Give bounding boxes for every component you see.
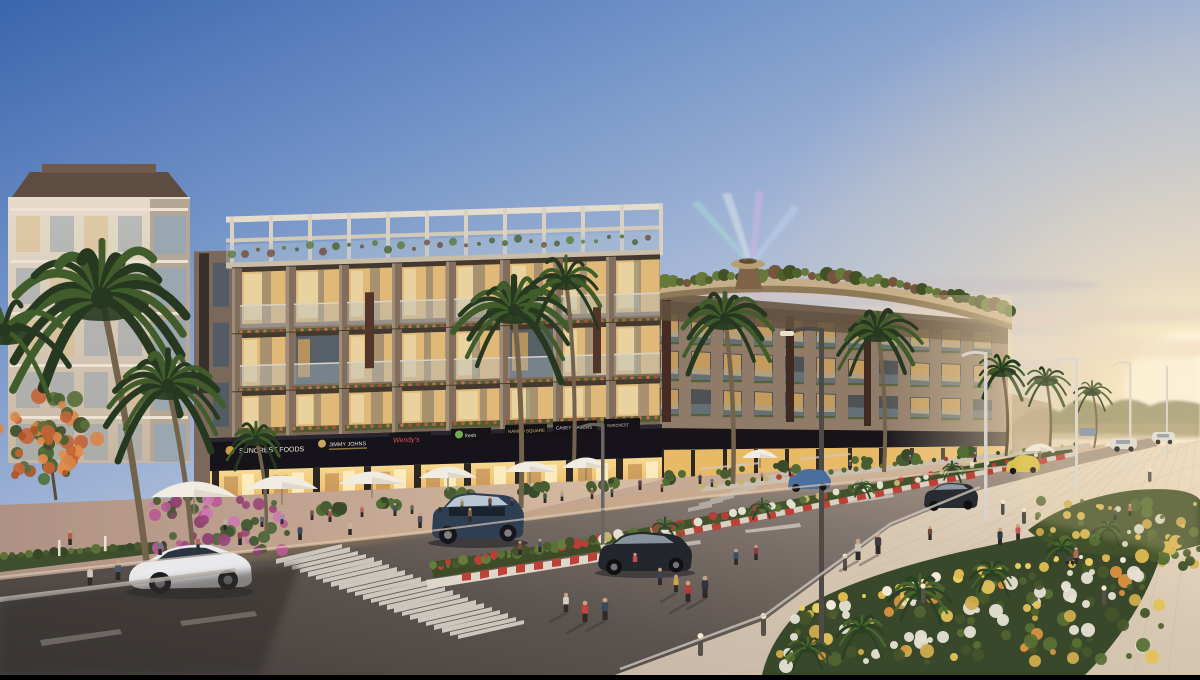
- svg-text:SUNCREST: SUNCREST: [607, 422, 630, 428]
- svg-text:fresh: fresh: [465, 433, 476, 439]
- svg-text:Wendy’s: Wendy’s: [393, 437, 420, 445]
- svg-text:JIMMY JOHNS: JIMMY JOHNS: [329, 441, 367, 448]
